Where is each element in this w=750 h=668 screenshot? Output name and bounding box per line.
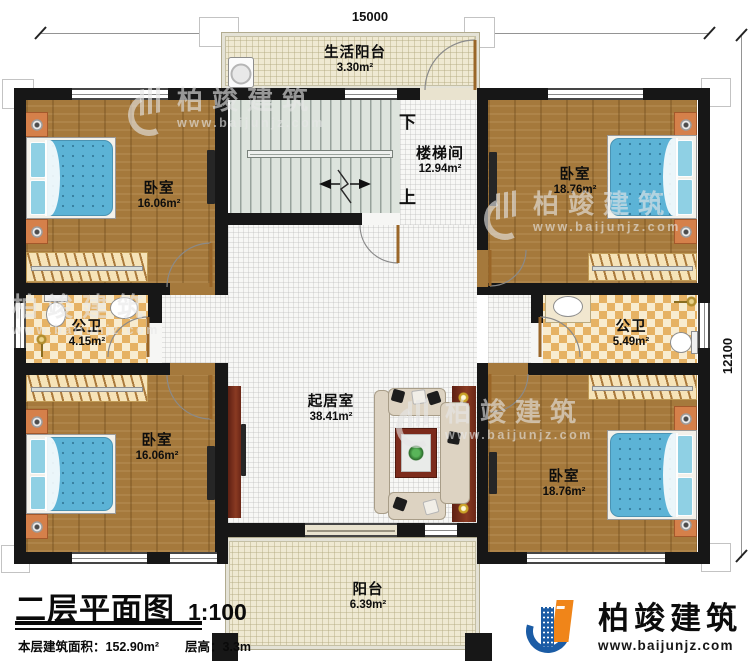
brand-name: 柏竣建筑 (598, 603, 742, 634)
room-label-bedroom-br: 卧室 18.76m² (514, 470, 614, 499)
stair-down-label: 下 (399, 108, 416, 133)
room-label-bath-left: 公卫 4.15m² (47, 320, 127, 349)
room-label-bedroom-tl: 卧室 16.06m² (109, 182, 209, 211)
room-label-living-room: 起居室 38.41m² (286, 395, 376, 424)
floor-plan-canvas: 15000 12100 (0, 0, 750, 668)
room-label-balcony: 阳台 6.39m² (318, 583, 418, 612)
stair-up-label: 上 (399, 183, 416, 208)
room-label-living-balcony: 生活阳台 3.30m² (300, 46, 410, 75)
room-label-stairwell: 楼梯间 12.94m² (394, 146, 486, 175)
brand-logo-icon (526, 597, 588, 659)
title-underline (15, 621, 202, 625)
dimension-ticks (35, 27, 747, 562)
room-label-bedroom-tr: 卧室 18.76m² (525, 168, 625, 197)
floor-area-label: 本层建筑面积：152.90m² (18, 636, 159, 655)
title-block: 二层平面图 1:100 本层建筑面积：152.90m² 层高：3.3m (15, 584, 215, 629)
room-label-bedroom-bl: 卧室 16.06m² (107, 434, 207, 463)
floor-height-label: 层高：3.3m (185, 636, 251, 655)
brand-url: www.baijunjz.com (598, 638, 742, 653)
title-underline (15, 628, 202, 630)
room-label-bath-right: 公卫 5.49m² (591, 320, 671, 349)
brand-logo: 柏竣建筑 www.baijunjz.com (526, 597, 742, 659)
stair-direction-arrows (319, 170, 371, 203)
